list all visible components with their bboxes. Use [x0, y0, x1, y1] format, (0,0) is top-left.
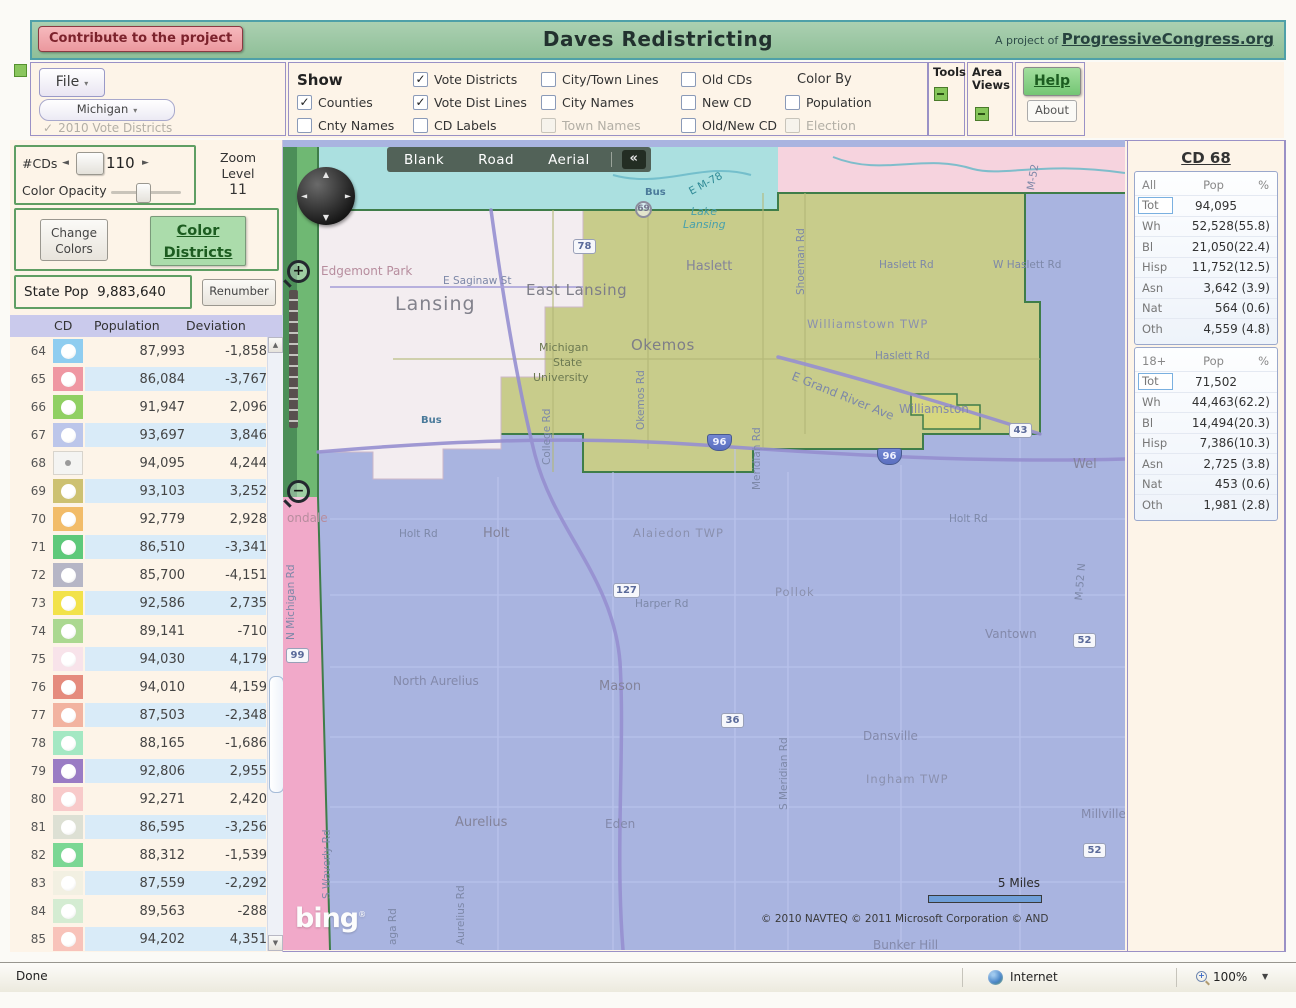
swatch-cell: [51, 367, 85, 391]
bing-logo: bing®: [295, 903, 365, 934]
stats-row: Tot94,095: [1135, 195, 1277, 216]
cd-panel-title: CD 68: [1128, 149, 1284, 167]
checkbox-label: CD Labels: [434, 118, 497, 133]
table-row: 7594,0304,179: [10, 645, 266, 673]
stats-value: 1,981 (2.8): [1181, 498, 1277, 512]
cd-color-swatch[interactable]: [53, 787, 83, 811]
table-row: 7489,141-710: [10, 617, 266, 645]
cd-deviation: -4,151: [185, 568, 266, 583]
row-data[interactable]: 87,993-1,858: [85, 339, 266, 363]
stats-row: Asn2,725 (3.8): [1135, 453, 1277, 474]
table-row: 8092,2712,420: [10, 785, 266, 813]
table-row: 6793,6973,846: [10, 421, 266, 449]
swatch-cell: [51, 871, 85, 895]
checkbox-label: New CD: [702, 95, 752, 110]
cd-number: 80: [10, 792, 51, 806]
row-data[interactable]: 89,563-288: [85, 899, 266, 923]
table-scrollbar[interactable]: ▲ ▼: [267, 337, 283, 951]
stats-row: Bl21,050(22.4): [1135, 236, 1277, 257]
progressivecongress-link[interactable]: ProgressiveCongress.org: [1062, 30, 1274, 48]
swatch-radio-dot: [61, 792, 76, 807]
file-section: File▾ Michigan▾ ✓2010 Vote Districts: [30, 62, 286, 136]
stats-row: Nat453 (0.6): [1135, 474, 1277, 495]
cd-deviation: 3,846: [185, 428, 266, 443]
cd-number: 77: [10, 708, 51, 722]
table-row: 8489,563-288: [10, 897, 266, 925]
checkbox-counties[interactable]: ✓Counties: [297, 95, 373, 110]
swatch-cell: [51, 731, 85, 755]
stats-value: 71,502: [1181, 375, 1277, 389]
checkbox-label: Election: [806, 118, 856, 133]
pan-north-icon[interactable]: ▲: [323, 170, 329, 179]
checkbox-old-new-cd[interactable]: Old/New CD: [681, 118, 777, 133]
checkbox-new-cd[interactable]: New CD: [681, 95, 752, 110]
tools-expand-icon[interactable]: [934, 87, 948, 101]
swatch-cell: [51, 787, 85, 811]
stats-value: 11,752(12.5): [1181, 260, 1277, 274]
stats-pop-header: Pop: [1188, 354, 1239, 368]
swatch-cell: [51, 423, 85, 447]
cd-color-swatch[interactable]: [53, 423, 83, 447]
cd-color-swatch[interactable]: [53, 591, 83, 615]
renumber-button[interactable]: Renumber: [202, 279, 276, 306]
stats-pct-header: %: [1239, 178, 1277, 192]
table-row: 6691,9472,096: [10, 393, 266, 421]
stats-box-18: 18+Pop%Tot71,502Wh44,463(62.2)Bl14,494(2…: [1134, 347, 1278, 521]
cd-number: 72: [10, 568, 51, 582]
chevron-down-icon: ▾: [133, 106, 137, 115]
map-layer-blank[interactable]: Blank: [387, 152, 461, 168]
stats-label-asn: Asn: [1135, 457, 1181, 471]
stats-group-label: All: [1135, 178, 1188, 192]
table-row: 6586,084-3,767: [10, 365, 266, 393]
col-header-cd: CD: [54, 318, 72, 333]
stats-header: 18+Pop%: [1135, 351, 1277, 371]
table-row: 7092,7792,928: [10, 505, 266, 533]
checkbox-cell: ✓Vote Districts: [413, 68, 541, 91]
swatch-radio-dot: [61, 876, 76, 891]
swatch-radio-dot: [61, 652, 76, 667]
swatch-cell: [51, 759, 85, 783]
checkbox-box[interactable]: [541, 72, 556, 87]
stats-row: Hisp7,386(10.3): [1135, 433, 1277, 454]
show-checkbox-grid: Show✓CountiesCnty Names✓Vote Districts✓V…: [289, 63, 927, 137]
cd-population: 94,095: [85, 456, 185, 471]
cd-color-swatch[interactable]: [53, 927, 83, 951]
cd-population: 93,103: [85, 484, 185, 499]
scroll-down-arrow[interactable]: ▼: [268, 935, 283, 951]
cd-deviation: 4,244: [185, 456, 266, 471]
cd-color-swatch[interactable]: [53, 395, 83, 419]
checkbox-cd-labels[interactable]: CD Labels: [413, 118, 497, 133]
map-compass[interactable]: ▲ ▼ ◄ ►: [297, 167, 355, 225]
checkbox-cell: ✓Vote Dist Lines: [413, 91, 541, 114]
cd-population: 92,806: [85, 764, 185, 779]
tools-section: Tools: [928, 62, 965, 136]
stats-value: 52,528(55.8): [1181, 219, 1277, 233]
swatch-cell: [51, 395, 85, 419]
checkbox-cell: Old CDs: [681, 68, 785, 91]
swatch-radio-dot: [61, 708, 76, 723]
cd-population: 88,165: [85, 736, 185, 751]
num-cds-label: #CDs: [22, 156, 57, 171]
swatch-radio-dot: [61, 428, 76, 443]
cd-population: 94,202: [85, 932, 185, 947]
cd-number: 65: [10, 372, 51, 386]
stats-value: 7,386(10.3): [1181, 436, 1277, 450]
swatch-radio-dot: [61, 540, 76, 555]
checkbox-city-town-lines[interactable]: City/Town Lines: [541, 72, 659, 87]
pan-west-icon[interactable]: ◄: [301, 192, 307, 201]
cd-population: 92,779: [85, 512, 185, 527]
stats-value: 21,050(22.4): [1181, 240, 1277, 254]
show-column: ✓Vote Districts✓Vote Dist LinesCD Labels: [413, 68, 541, 137]
stats-label-tot: Tot: [1135, 373, 1181, 390]
row-data[interactable]: 92,2712,420: [85, 787, 266, 811]
cd-number: 68: [10, 456, 51, 470]
cd-number: 76: [10, 680, 51, 694]
stats-value: 2,725 (3.8): [1181, 457, 1277, 471]
cd-deviation: -710: [185, 624, 266, 639]
cd-color-swatch[interactable]: [53, 675, 83, 699]
stats-label-text: Bl: [1142, 240, 1153, 254]
show-column: Color ByPopulationElection: [785, 68, 905, 137]
cd-color-swatch[interactable]: [53, 563, 83, 587]
checkbox-box[interactable]: [413, 118, 428, 133]
cds-increment-arrow[interactable]: ►: [142, 158, 149, 168]
zone-label: Internet: [1010, 970, 1058, 984]
checkbox-label: City Names: [562, 95, 634, 110]
checkbox-cell: CD Labels: [413, 114, 541, 137]
zoom-slider-ticks[interactable]: [289, 290, 298, 428]
cd-number: 66: [10, 400, 51, 414]
checkbox-label: Population: [806, 95, 872, 110]
checkbox-label: Old CDs: [702, 72, 752, 87]
stats-label-text: Asn: [1142, 457, 1163, 471]
cd-color-swatch[interactable]: [53, 843, 83, 867]
cd-deviation: 2,955: [185, 764, 266, 779]
swatch-radio-dot: [61, 820, 76, 835]
row-data[interactable]: 94,0304,179: [85, 647, 266, 671]
stats-value: 453 (0.6): [1181, 477, 1277, 491]
swatch-radio-dot: [61, 680, 76, 695]
row-data[interactable]: 92,7792,928: [85, 507, 266, 531]
table-row: 6993,1033,252: [10, 477, 266, 505]
num-cds-value: 110: [106, 154, 135, 172]
cd-deviation: 3,252: [185, 484, 266, 499]
daves-redistricting-app: Contribute to the project Daves Redistri…: [0, 0, 1296, 1008]
swatch-cell: [51, 591, 85, 615]
swatch-radio-dot: [61, 344, 76, 359]
cd-population: 92,271: [85, 792, 185, 807]
checkbox-box[interactable]: ✓: [413, 95, 428, 110]
about-button[interactable]: About: [1027, 100, 1077, 122]
swatch-cell: [51, 899, 85, 923]
checkbox-cell: Town Names: [541, 114, 681, 137]
cd-color-swatch[interactable]: [53, 759, 83, 783]
state-pop-value: State Pop 9,883,640: [24, 284, 166, 300]
swatch-cell: [51, 479, 85, 503]
checkbox-label: Old/New CD: [702, 118, 777, 133]
map-districts-layer: [283, 147, 1125, 950]
scrollbar-thumb[interactable]: [269, 676, 284, 793]
cd-number: 83: [10, 876, 51, 890]
status-text: Done: [16, 969, 48, 983]
cd-color-swatch[interactable]: [53, 479, 83, 503]
state-dropdown[interactable]: Michigan▾: [39, 99, 175, 121]
checkbox-label: Town Names: [562, 118, 641, 133]
row-data[interactable]: 91,9472,096: [85, 395, 266, 419]
change-colors-button[interactable]: ChangeColors: [40, 219, 108, 261]
cd-deviation: -2,348: [185, 708, 266, 723]
table-row: 7392,5862,735: [10, 589, 266, 617]
cd-deviation: -1,858: [185, 344, 266, 359]
cd-color-swatch[interactable]: [53, 647, 83, 671]
row-data[interactable]: 88,165-1,686: [85, 731, 266, 755]
cd-population: 87,993: [85, 344, 185, 359]
map-scale-label: 5 Miles: [900, 876, 1040, 890]
stats-row: Oth4,559 (4.8): [1135, 318, 1277, 339]
row-data[interactable]: 85,700-4,151: [85, 563, 266, 587]
row-data[interactable]: 86,510-3,341: [85, 535, 266, 559]
map-scale-bar: [928, 895, 1042, 903]
checkbox-cell: City Names: [541, 91, 681, 114]
cd-color-swatch[interactable]: [53, 619, 83, 643]
cd-color-swatch[interactable]: [53, 507, 83, 531]
stats-row: Wh52,528(55.8): [1135, 216, 1277, 237]
swatch-cell: [51, 647, 85, 671]
expander-icon[interactable]: [14, 64, 27, 77]
checkbox-vote-dist-lines[interactable]: ✓Vote Dist Lines: [413, 95, 527, 110]
zoom-out-icon[interactable]: −: [287, 480, 310, 503]
cd-deviation: 2,096: [185, 400, 266, 415]
cd-deviation: 4,179: [185, 652, 266, 667]
checkbox-box[interactable]: [681, 72, 696, 87]
cd-population: 94,010: [85, 680, 185, 695]
collapse-toolbar-button[interactable]: «: [622, 150, 646, 169]
checkbox-population[interactable]: Population: [785, 95, 872, 110]
project-credit: A project of ProgressiveCongress.org: [995, 30, 1274, 48]
cds-control-box: #CDs ◄ 110 ► Color Opacity: [14, 145, 196, 205]
cd-color-swatch[interactable]: [53, 871, 83, 895]
cd-number: 79: [10, 764, 51, 778]
checkbox-city-names[interactable]: City Names: [541, 95, 634, 110]
row-data[interactable]: 86,084-3,767: [85, 367, 266, 391]
cd-color-swatch[interactable]: [53, 367, 83, 391]
stats-label-bl: Bl: [1135, 416, 1181, 430]
cd-color-swatch[interactable]: [53, 703, 83, 727]
swatch-radio-dot: [61, 568, 76, 583]
cd-number: 71: [10, 540, 51, 554]
stats-label-oth: Oth: [1135, 498, 1181, 512]
cd-population: 87,503: [85, 708, 185, 723]
sidebar: #CDs ◄ 110 ► Color Opacity Zoom Level 11…: [10, 140, 283, 952]
cd-color-swatch[interactable]: [53, 899, 83, 923]
swatch-cell: [51, 843, 85, 867]
row-data[interactable]: 94,2024,351: [85, 927, 266, 951]
stats-row: Wh44,463(62.2): [1135, 392, 1277, 413]
stats-value: 564 (0.6): [1181, 301, 1277, 315]
swatch-radio-dot: [61, 904, 76, 919]
area-views-expand-icon[interactable]: [975, 107, 989, 121]
row-data[interactable]: 87,503-2,348: [85, 703, 266, 727]
map-layer-aerial[interactable]: Aerial: [531, 152, 607, 168]
checkbox-box[interactable]: [541, 95, 556, 110]
cd-number: 67: [10, 428, 51, 442]
cd-population: 86,510: [85, 540, 185, 555]
row-data[interactable]: 93,1033,252: [85, 479, 266, 503]
cd-deviation: -1,539: [185, 848, 266, 863]
swatch-radio-dot: [61, 736, 76, 751]
color-districts-button[interactable]: ColorDistricts: [150, 216, 246, 266]
cd-number: 69: [10, 484, 51, 498]
checkbox-vote-districts[interactable]: ✓Vote Districts: [413, 72, 517, 87]
checkbox-box: [785, 118, 800, 133]
checkbox-cnty-names[interactable]: Cnty Names: [297, 118, 394, 133]
cd-number: 82: [10, 848, 51, 862]
stats-label-text: Nat: [1142, 477, 1162, 491]
checkbox-cell: New CD: [681, 91, 785, 114]
cd-color-swatch[interactable]: [53, 815, 83, 839]
state-pop-box: State Pop 9,883,640: [14, 275, 192, 309]
stats-label-bl: Bl: [1135, 240, 1181, 254]
zoom-in-icon[interactable]: +: [287, 260, 310, 283]
cd-color-swatch[interactable]: [53, 451, 83, 475]
checkbox-label: Vote Districts: [434, 72, 517, 87]
swatch-radio-dot: [61, 624, 76, 639]
swatch-radio-dot: [65, 460, 71, 466]
browser-zoom-level[interactable]: 100%: [1213, 970, 1247, 984]
help-section: Help About: [1015, 62, 1085, 136]
stats-label-wh: Wh: [1135, 395, 1181, 409]
row-data[interactable]: 94,0954,244: [85, 451, 266, 475]
stats-group-label: 18+: [1135, 354, 1188, 368]
table-row: 8288,312-1,539: [10, 841, 266, 869]
stats-label-text: Hisp: [1142, 436, 1167, 450]
cd-population: 86,595: [85, 820, 185, 835]
stats-label-asn: Asn: [1135, 281, 1181, 295]
swatch-radio-dot: [61, 512, 76, 527]
stats-label-text: Bl: [1142, 416, 1153, 430]
pan-south-icon[interactable]: ▼: [323, 213, 329, 222]
checkbox-box[interactable]: ✓: [413, 72, 428, 87]
checkbox-label: Counties: [318, 95, 373, 110]
checkbox-label: Cnty Names: [318, 118, 394, 133]
color-opacity-label: Color Opacity: [22, 183, 107, 198]
cd-color-swatch[interactable]: [53, 339, 83, 363]
show-column: Old CDsNew CDOld/New CD: [681, 68, 785, 137]
row-data[interactable]: 92,5862,735: [85, 591, 266, 615]
scroll-up-arrow[interactable]: ▲: [268, 337, 283, 353]
stats-label-text: Tot: [1138, 197, 1173, 214]
row-data[interactable]: 86,595-3,256: [85, 815, 266, 839]
checkbox-cell: Election: [785, 114, 905, 137]
tools-label: Tools: [929, 63, 964, 79]
table-row: 7186,510-3,341: [10, 533, 266, 561]
stats-label-text: Oth: [1142, 498, 1163, 512]
map-layer-road[interactable]: Road: [461, 152, 531, 168]
stats-row: Nat564 (0.6): [1135, 298, 1277, 319]
swatch-cell: [51, 339, 85, 363]
cd-population: 88,312: [85, 848, 185, 863]
cd-deviation: 4,351: [185, 932, 266, 947]
cd-color-swatch[interactable]: [53, 535, 83, 559]
cd-color-swatch[interactable]: [53, 731, 83, 755]
swatch-cell: [51, 535, 85, 559]
stats-box-all: AllPop%Tot94,095Wh52,528(55.8)Bl21,050(2…: [1134, 171, 1278, 345]
opacity-slider-thumb[interactable]: [136, 183, 151, 203]
cd-deviation: -3,767: [185, 372, 266, 387]
cds-decrement-arrow[interactable]: ◄: [62, 158, 69, 168]
show-label: Show: [297, 68, 413, 91]
cd-population: 89,141: [85, 624, 185, 639]
row-data[interactable]: 92,8062,955: [85, 759, 266, 783]
stats-row: Tot71,502: [1135, 371, 1277, 392]
file-menu-button[interactable]: File▾: [39, 68, 105, 97]
checkbox-box[interactable]: [681, 118, 696, 133]
stats-pct-header: %: [1239, 354, 1277, 368]
color-control-box: ChangeColors ColorDistricts: [14, 208, 279, 271]
checkbox-cell: City/Town Lines: [541, 68, 681, 91]
swatch-radio-dot: [61, 400, 76, 415]
stats-value: 14,494(20.3): [1181, 416, 1277, 430]
checkbox-box: [541, 118, 556, 133]
check-icon: ✓: [43, 121, 53, 135]
zoom-level-value: 11: [229, 182, 247, 198]
checkbox-box[interactable]: [681, 95, 696, 110]
checkbox-box[interactable]: [785, 95, 800, 110]
cd-number: 81: [10, 820, 51, 834]
checkbox-cell: ✓Counties: [297, 91, 413, 114]
cd-table: 6487,993-1,8586586,084-3,7676691,9472,09…: [10, 337, 266, 951]
checkbox-election: Election: [785, 118, 856, 133]
checkbox-box[interactable]: ✓: [297, 95, 312, 110]
map[interactable]: Edgemont ParkE Saginaw StLansingEast Lan…: [283, 140, 1125, 950]
checkbox-old-cds[interactable]: Old CDs: [681, 72, 752, 87]
pan-east-icon[interactable]: ►: [345, 192, 351, 201]
swatch-radio-dot: [61, 372, 76, 387]
checkbox-box[interactable]: [297, 118, 312, 133]
cd-deviation: -288: [185, 904, 266, 919]
checkbox-cell: Population: [785, 91, 905, 114]
swatch-cell: [51, 451, 85, 475]
stats-value: 4,559 (4.8): [1181, 322, 1277, 336]
map-layer-toolbar: BlankRoadAerial«: [387, 147, 651, 172]
row-data[interactable]: 93,6973,846: [85, 423, 266, 447]
row-data[interactable]: 94,0104,159: [85, 675, 266, 699]
stats-label-hisp: Hisp: [1135, 260, 1181, 274]
swatch-radio-dot: [61, 848, 76, 863]
row-data[interactable]: 87,559-2,292: [85, 871, 266, 895]
stats-label-wh: Wh: [1135, 219, 1181, 233]
stats-label-nat: Nat: [1135, 301, 1181, 315]
cds-slider-thumb[interactable]: [76, 152, 104, 175]
row-data[interactable]: 89,141-710: [85, 619, 266, 643]
help-button[interactable]: Help: [1023, 67, 1081, 96]
top-banner: Contribute to the project Daves Redistri…: [30, 20, 1286, 60]
swatch-cell: [51, 815, 85, 839]
stats-label-tot: Tot: [1135, 197, 1181, 214]
swatch-radio-dot: [61, 764, 76, 779]
show-column: City/Town LinesCity NamesTown Names: [541, 68, 681, 137]
zoom-dropdown-caret[interactable]: ▼: [1262, 972, 1268, 981]
stats-label-text: Hisp: [1142, 260, 1167, 274]
swatch-cell: [51, 619, 85, 643]
stats-value: 94,095: [1181, 199, 1277, 213]
cd-deviation: 2,420: [185, 792, 266, 807]
stats-row: Hisp11,752(12.5): [1135, 257, 1277, 278]
row-data[interactable]: 88,312-1,539: [85, 843, 266, 867]
